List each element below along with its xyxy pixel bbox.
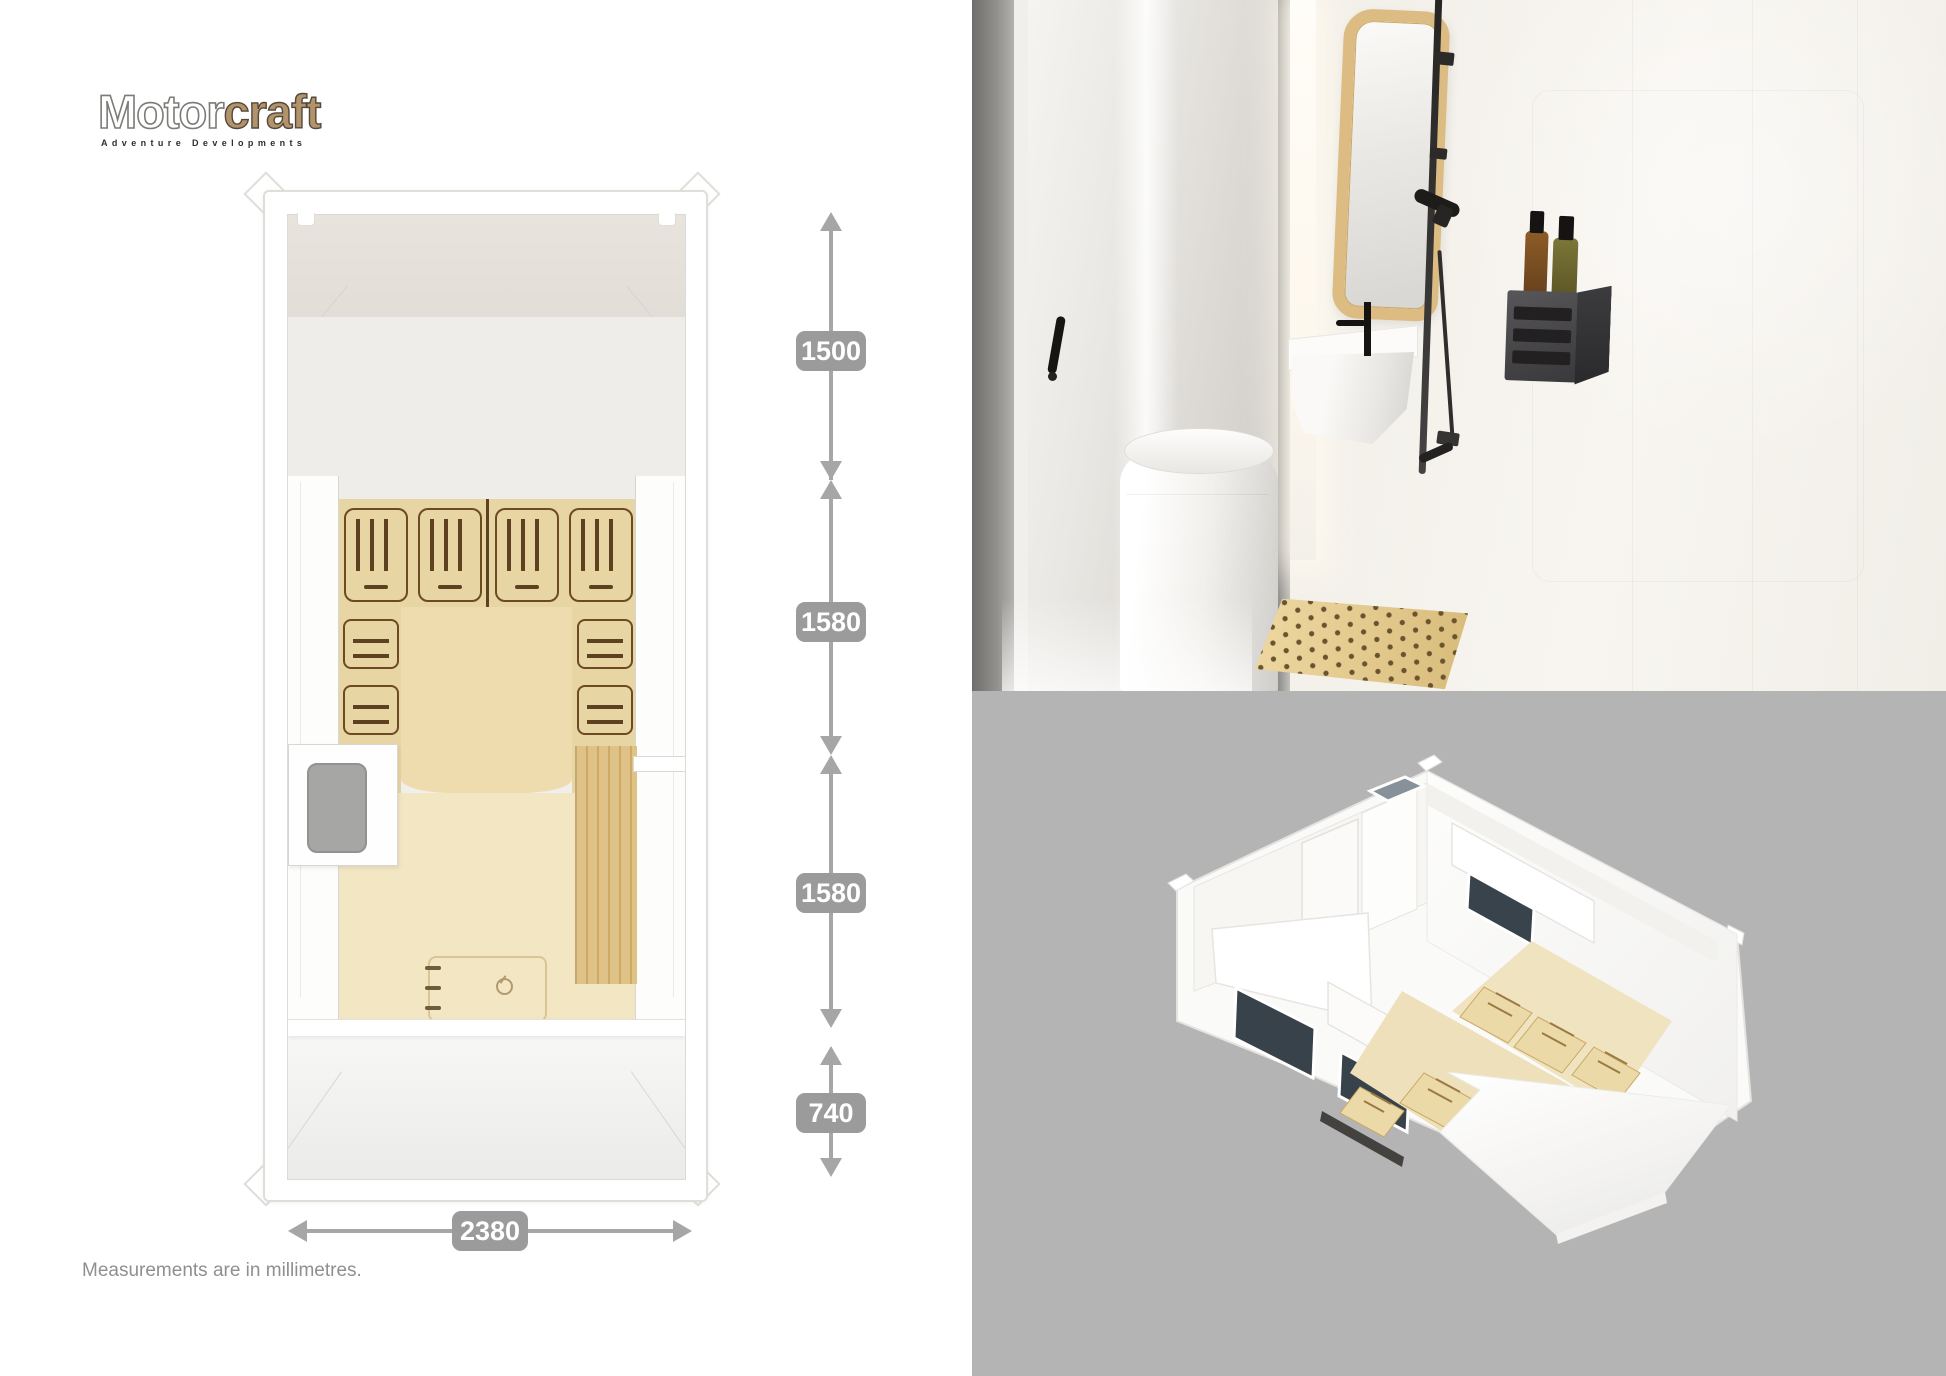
- dimension-badge: 2380: [452, 1211, 528, 1251]
- rail-bracket: [1429, 147, 1447, 160]
- arrow-up-icon: [820, 212, 842, 231]
- slat-panel: [418, 508, 482, 602]
- arrow-up-icon: [820, 1046, 842, 1065]
- dimension-joint-icon: [820, 736, 842, 755]
- faucet: [1364, 302, 1371, 356]
- basket-front: [1504, 290, 1579, 382]
- bed-niche: [401, 607, 572, 793]
- floorplan-interior: [287, 214, 686, 1180]
- perspective-line: [631, 1071, 686, 1149]
- slat-pattern: [587, 696, 623, 724]
- drawer-panel: [343, 619, 399, 669]
- bottle-cap: [1530, 211, 1545, 233]
- led-light-strip: [1290, 0, 1316, 560]
- sink-body: [1292, 352, 1414, 444]
- panel-line: [673, 482, 674, 997]
- basket-slot: [1513, 328, 1571, 343]
- handle-mount: [1048, 372, 1057, 381]
- slat-bar: [364, 585, 388, 589]
- shampoo-bottle: [1523, 231, 1548, 298]
- laminate-strip: [575, 746, 637, 984]
- arrow-down-icon: [820, 1158, 842, 1177]
- dimension-badge: 1580: [796, 873, 866, 913]
- slat-pattern: [587, 630, 623, 658]
- sink-basin: [307, 763, 367, 853]
- floor-hatch: [428, 956, 547, 1022]
- drawer-panel: [577, 619, 633, 669]
- garage-area: [288, 1035, 685, 1179]
- drain-icon: [496, 978, 513, 995]
- wall-hung-sink: [1288, 318, 1418, 450]
- corner-tab: [1418, 755, 1442, 771]
- wall-seam: [1632, 0, 1633, 691]
- faucet-spout: [1336, 320, 1366, 326]
- dimension-badge: 740: [796, 1093, 866, 1133]
- logo-wordmark: Motorcraft: [98, 88, 320, 135]
- brand-logo: Motorcraft Adventure Developments: [98, 88, 320, 148]
- slat-pattern: [581, 519, 621, 571]
- dimension-badge: 1500: [796, 331, 866, 371]
- spec-sheet-page: Motorcraft Adventure Developments: [0, 0, 1946, 1376]
- logo-main-text: Motor: [98, 85, 224, 138]
- perspective-line: [287, 1071, 342, 1149]
- slat-pattern: [356, 519, 396, 571]
- bed-deck-area: [288, 317, 685, 499]
- dimension-joint-icon: [820, 461, 842, 480]
- arrow-down-icon: [820, 1009, 842, 1028]
- slat-bar: [515, 585, 539, 589]
- hatch-hinge: [425, 1006, 441, 1010]
- slat-bar: [589, 585, 613, 589]
- slat-pattern: [353, 696, 389, 724]
- panel-line: [300, 482, 301, 997]
- slat-pattern: [353, 630, 389, 658]
- basket-slot: [1512, 350, 1570, 365]
- drawer-panel: [577, 685, 633, 735]
- hatch-hinge: [425, 986, 441, 990]
- measurements-note: Measurements are in millimetres.: [82, 1260, 362, 1282]
- frame-notch: [297, 213, 315, 226]
- rail-bracket: [1433, 51, 1454, 66]
- logo-tagline: Adventure Developments: [98, 138, 320, 148]
- wall-seam: [1752, 0, 1753, 691]
- slat-panel: [569, 508, 633, 602]
- door-frame-highlight: [1014, 0, 1028, 691]
- floorplan-figure: [263, 190, 708, 1202]
- drawer-panel: [343, 685, 399, 735]
- dimension-badge: 1580: [796, 602, 866, 642]
- kitchen-column: [1362, 789, 1417, 933]
- storage-basket: [1504, 280, 1618, 394]
- floor-reflection: [1002, 598, 1252, 691]
- dimension-joint-icon: [820, 480, 842, 499]
- bottle-cap: [1558, 216, 1574, 241]
- basket-side: [1574, 285, 1611, 386]
- dimension-joint-icon: [820, 755, 842, 774]
- slat-pattern: [430, 519, 470, 571]
- bathroom-render: [972, 0, 1946, 691]
- step-edge: [288, 1019, 685, 1036]
- hatch-hinge: [425, 966, 441, 970]
- cabinet-divider: [486, 499, 489, 607]
- slat-panel: [495, 508, 559, 602]
- side-ledge: [633, 756, 686, 772]
- logo-accent-text: craft: [224, 85, 321, 138]
- sink-unit: [288, 744, 398, 866]
- arrow-right-icon: [673, 1220, 692, 1242]
- frame-notch: [658, 213, 676, 226]
- isometric-drawing: [972, 691, 1946, 1376]
- slat-panel: [344, 508, 408, 602]
- isometric-render: [972, 691, 1946, 1376]
- door-frame-edge: [972, 0, 1014, 691]
- slat-pattern: [507, 519, 547, 571]
- slat-bar: [438, 585, 462, 589]
- cab-area: [288, 215, 685, 317]
- basket-slot: [1514, 306, 1572, 321]
- wall-seam: [1857, 0, 1858, 691]
